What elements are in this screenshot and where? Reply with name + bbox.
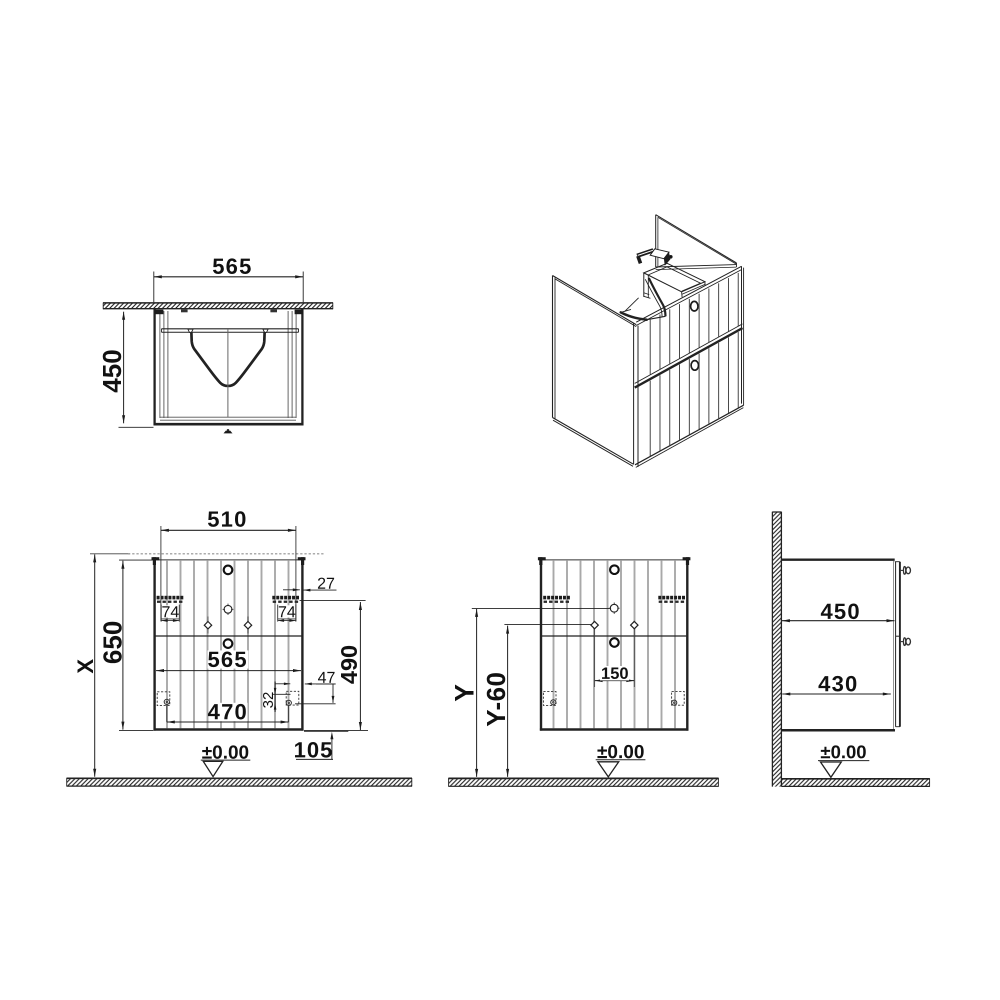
svg-text:450: 450 (97, 349, 127, 392)
svg-text:32: 32 (260, 692, 277, 709)
svg-text:150: 150 (601, 665, 629, 683)
svg-text:650: 650 (98, 621, 128, 664)
svg-text:490: 490 (336, 645, 362, 684)
svg-text:430: 430 (818, 671, 858, 696)
svg-text:Y-60: Y-60 (481, 672, 511, 727)
svg-text:450: 450 (820, 599, 860, 624)
svg-text:105: 105 (294, 737, 334, 762)
svg-text:470: 470 (208, 699, 248, 724)
svg-text:565: 565 (212, 254, 252, 279)
svg-text:±0.00: ±0.00 (820, 741, 866, 762)
svg-text:X: X (73, 659, 98, 674)
svg-text:565: 565 (207, 647, 247, 672)
svg-text:510: 510 (207, 507, 247, 532)
svg-text:Y: Y (449, 684, 479, 702)
